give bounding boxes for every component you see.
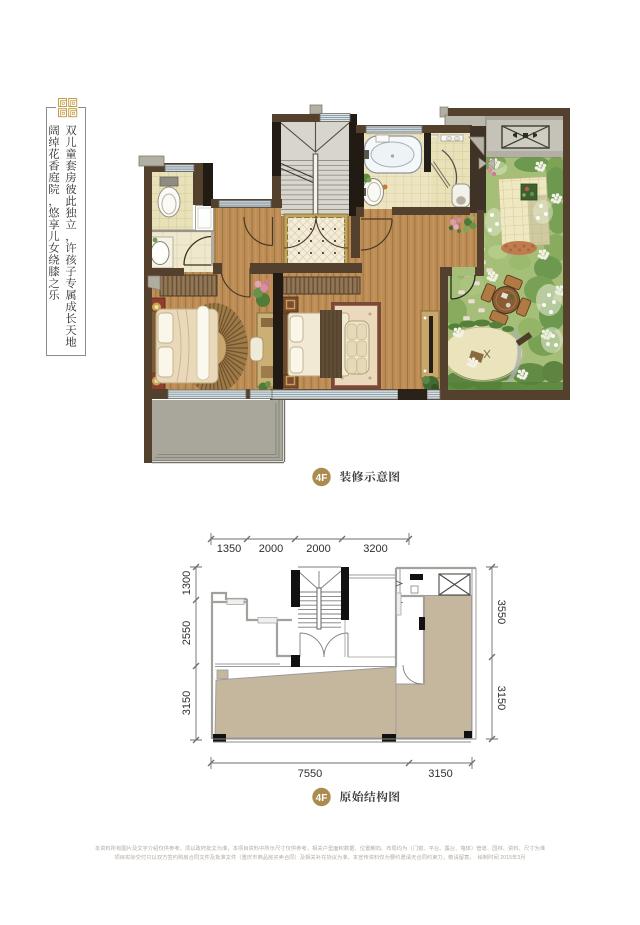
svg-text:3550: 3550 (495, 600, 507, 624)
svg-text:7550: 7550 (298, 768, 322, 780)
svg-text:2000: 2000 (259, 543, 283, 555)
svg-text:2550: 2550 (181, 621, 193, 645)
svg-text:2000: 2000 (306, 543, 330, 555)
svg-text:3200: 3200 (363, 543, 387, 555)
svg-text:本资料所有图片及文字介绍仅供参考，须以政府批文为准，本项目资: 本资料所有图片及文字介绍仅供参考，须以政府批文为准，本项目资料中所示尺寸仅供参考… (95, 844, 546, 852)
svg-text:3150: 3150 (428, 768, 452, 780)
svg-text:3150: 3150 (181, 691, 193, 715)
svg-text:3150: 3150 (495, 686, 507, 710)
svg-text:4F: 4F (316, 473, 328, 484)
svg-text:1300: 1300 (181, 571, 193, 595)
svg-text:4F: 4F (316, 793, 328, 804)
svg-text:项目实际交付只以双方签约购房合同文件及批准文件（重庆市商品房: 项目实际交付只以双方签约购房合同文件及批准文件（重庆市商品房买卖合同）及相关补充… (114, 853, 525, 861)
svg-text:1350: 1350 (217, 543, 241, 555)
